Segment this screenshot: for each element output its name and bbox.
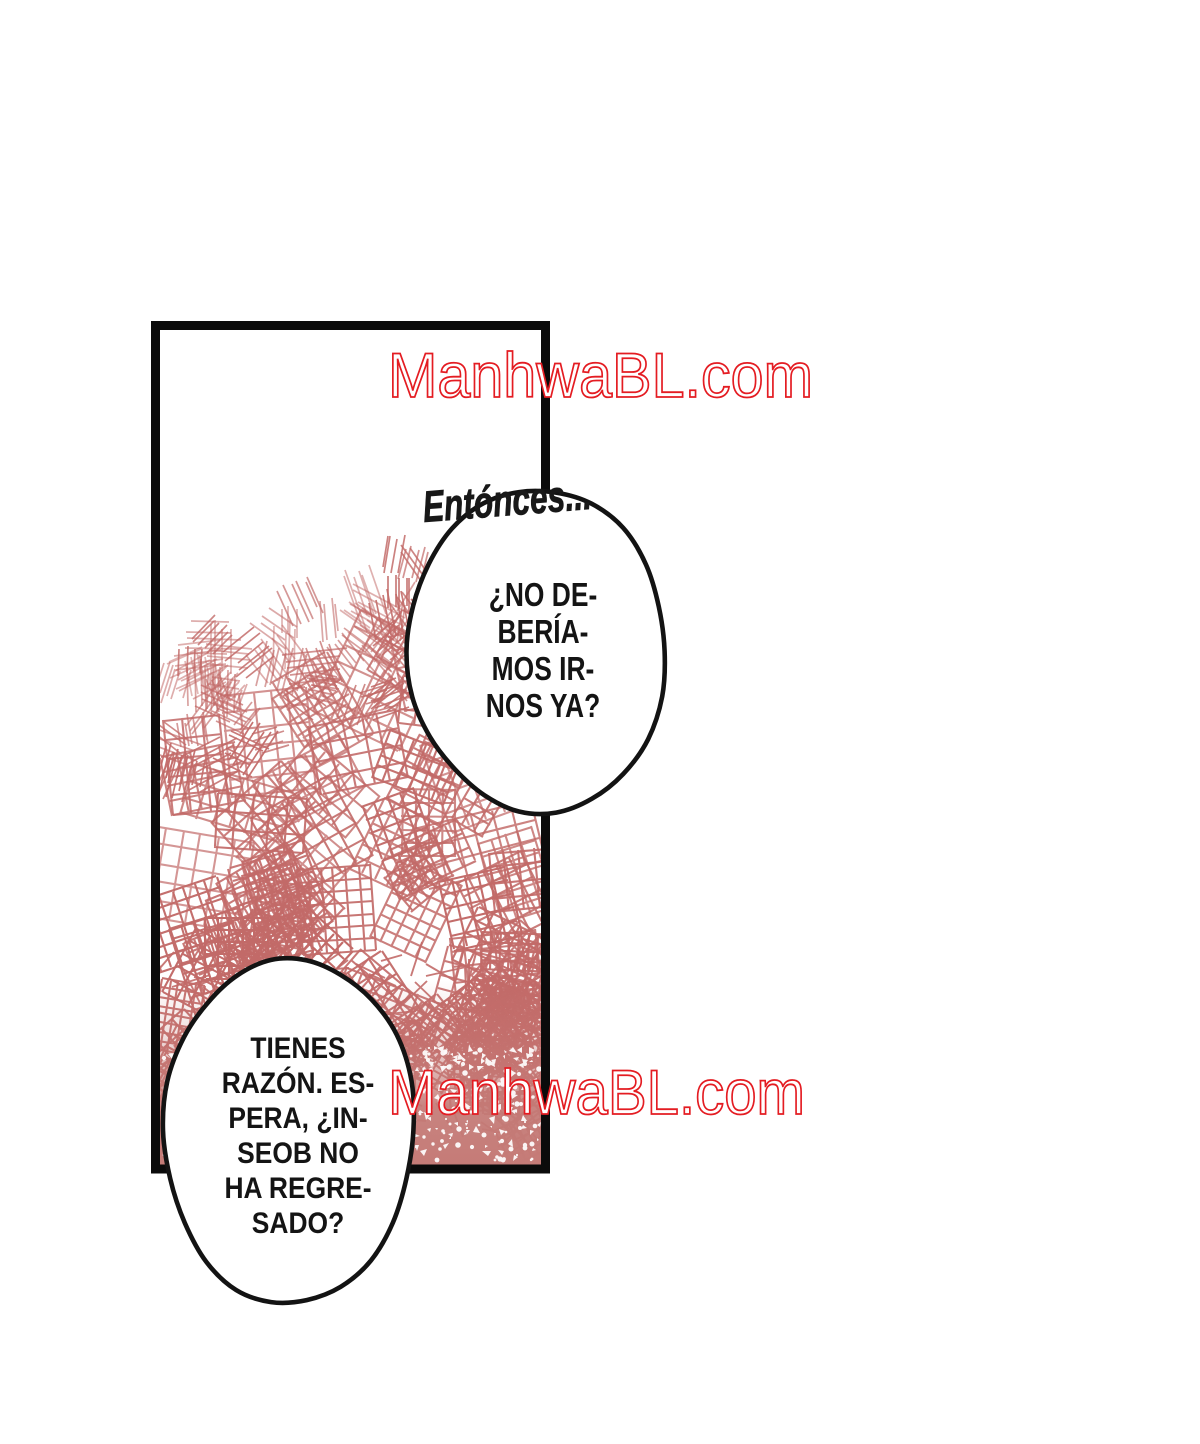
- svg-text:TIENES: TIENES: [250, 1030, 345, 1064]
- svg-text:ManhwaBL.com: ManhwaBL.com: [388, 1058, 805, 1128]
- svg-text:SADO?: SADO?: [252, 1205, 344, 1239]
- svg-text:ManhwaBL.com: ManhwaBL.com: [388, 341, 813, 411]
- svg-text:SEOB NO: SEOB NO: [237, 1135, 359, 1169]
- svg-text:NOS YA?: NOS YA?: [486, 688, 600, 724]
- svg-text:¿NO DE-: ¿NO DE-: [489, 577, 597, 613]
- svg-text:PERA, ¿IN-: PERA, ¿IN-: [228, 1100, 367, 1134]
- svg-text:MOS IR-: MOS IR-: [492, 651, 595, 687]
- svg-text:HA REGRE-: HA REGRE-: [224, 1170, 371, 1204]
- svg-text:BERÍA-: BERÍA-: [498, 613, 589, 651]
- svg-text:RAZÓN. ES-: RAZÓN. ES-: [222, 1065, 375, 1099]
